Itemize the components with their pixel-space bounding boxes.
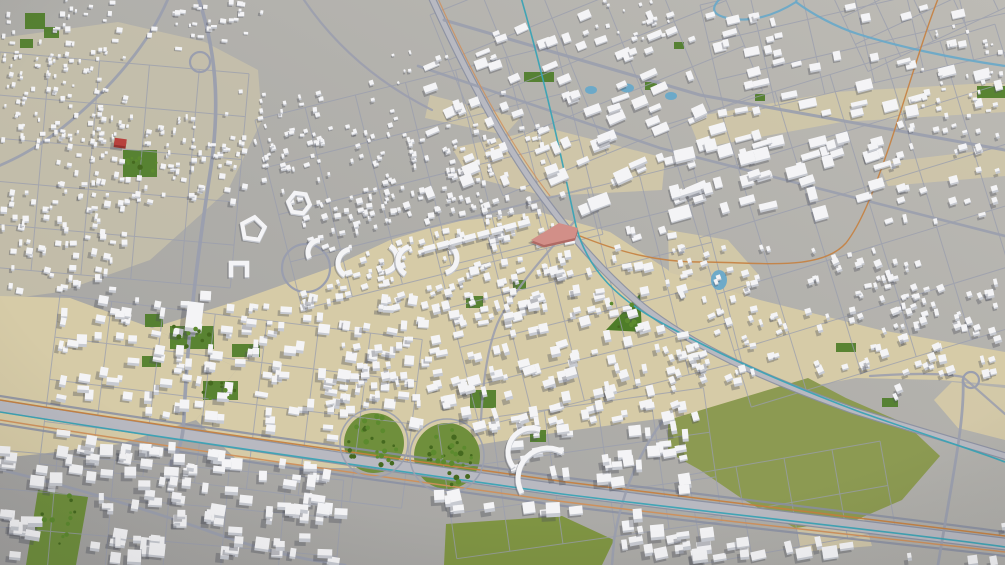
vignette (0, 0, 1005, 565)
city-3d-viewport (0, 0, 1005, 565)
city-model-render (0, 0, 1005, 565)
